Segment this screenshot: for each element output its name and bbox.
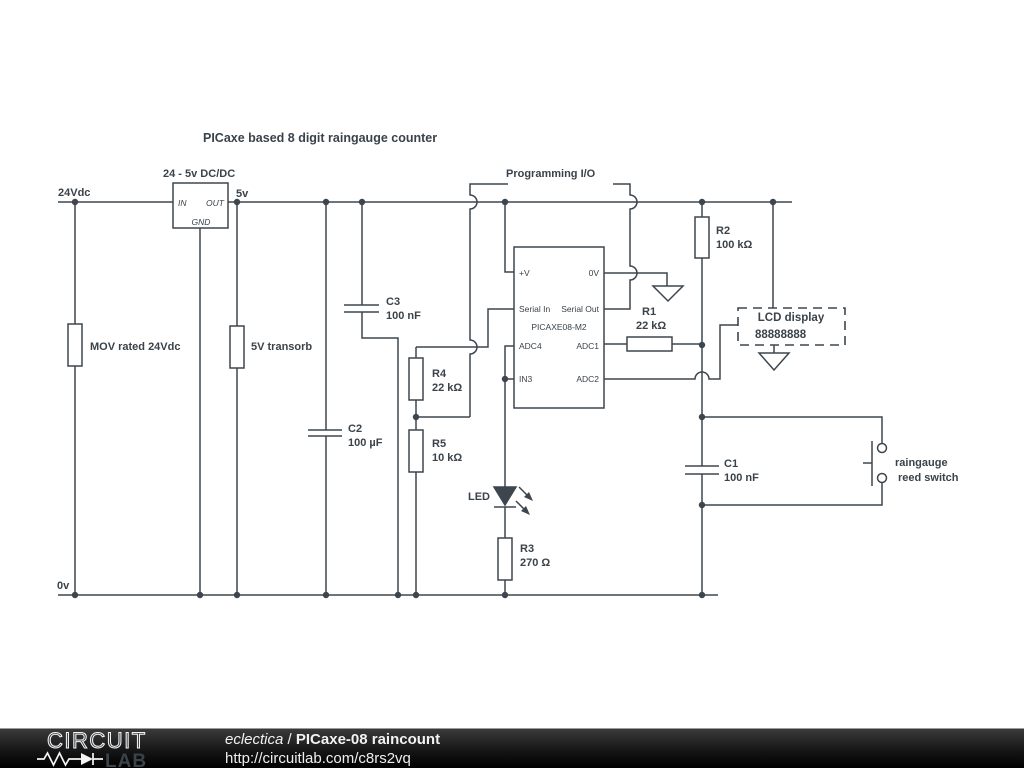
schematic-title: PICaxe based 8 digit raingauge counter <box>203 131 437 145</box>
capacitor-c2: C2 100 µF <box>308 423 383 449</box>
footer-title-line: eclectica / PICaxe-08 raincount <box>225 730 440 749</box>
footer-author: eclectica <box>225 731 283 748</box>
capacitor-c3: C3 100 nF <box>344 296 421 322</box>
logo-text-circuit: CIRCUIT <box>47 729 147 753</box>
schematic-canvas: PICaxe based 8 digit raingauge counter 2… <box>0 0 1024 728</box>
vplus-wire <box>505 202 514 272</box>
dcdc-pin-in: IN <box>178 198 187 208</box>
reed-label-line2: reed switch <box>898 472 959 484</box>
chip-pin-adc2: ADC2 <box>576 374 599 384</box>
circuitlab-schematic-page: PICaxe based 8 digit raingauge counter 2… <box>0 0 1024 768</box>
adc2-lcd-wire <box>604 325 738 379</box>
c3-branch-wire <box>362 202 398 595</box>
c1-ref: C1 <box>724 458 738 470</box>
reed-label-line1: raingauge <box>895 457 948 469</box>
chip-pin-in3: IN3 <box>519 374 533 384</box>
resistor-r4: R4 22 kΩ <box>409 358 462 400</box>
r1-value: 22 kΩ <box>636 320 666 332</box>
footer-schematic-title: PICaxe-08 raincount <box>296 731 440 748</box>
chip-pin-serial-in: Serial In <box>519 304 550 314</box>
picaxe-chip: +V 0V Serial In Serial Out PICAXE08-M2 A… <box>514 247 604 408</box>
footer-text-block: eclectica / PICaxe-08 raincount http://c… <box>225 730 440 768</box>
label-24vdc: 24Vdc <box>58 187 90 199</box>
capacitor-c1: C1 100 nF <box>685 458 759 484</box>
chip-pin-adc4: ADC4 <box>519 341 542 351</box>
r3-ref: R3 <box>520 543 534 555</box>
circuitlab-logo: CIRCUIT LAB <box>35 729 187 768</box>
r4-value: 22 kΩ <box>432 382 462 394</box>
r3-value: 270 Ω <box>520 557 550 569</box>
mov-label: MOV rated 24Vdc <box>90 341 180 353</box>
resistor-r3: R3 270 Ω <box>498 538 550 580</box>
reed-switch: raingauge reed switch <box>863 441 959 486</box>
logo-resistor-diode-icon <box>37 753 103 765</box>
dcdc-pin-gnd: GND <box>192 217 211 227</box>
led-component: LED <box>468 487 533 515</box>
chip-name: PICAXE08-M2 <box>531 322 587 332</box>
resistor-r5: R5 10 kΩ <box>409 430 462 472</box>
r5-ref: R5 <box>432 438 446 450</box>
lcd-display: LCD display 88888888 <box>738 308 845 345</box>
power-rails <box>58 202 792 595</box>
lcd-digits: 88888888 <box>755 329 807 341</box>
chip-pin-0v: 0V <box>589 268 600 278</box>
label-0v: 0v <box>57 580 70 592</box>
resistor-r2: R2 100 kΩ <box>695 217 753 258</box>
zerov-wire <box>604 273 667 286</box>
transorb-component: 5V transorb <box>230 326 312 368</box>
ground-symbol-0v <box>653 286 683 301</box>
ground-symbol-lcd <box>759 353 789 370</box>
wires <box>58 184 882 595</box>
mov-component: MOV rated 24Vdc <box>68 324 180 366</box>
r2-ref: R2 <box>716 225 730 237</box>
r2-value: 100 kΩ <box>716 239 753 251</box>
c2-ref: C2 <box>348 423 362 435</box>
c3-value: 100 nF <box>386 310 421 322</box>
dcdc-label: 24 - 5v DC/DC <box>163 168 235 180</box>
serial-in-wire <box>416 309 514 347</box>
footer-divider: / <box>288 731 292 748</box>
dcdc-pin-out: OUT <box>206 198 225 208</box>
chip-pin-adc1: ADC1 <box>576 341 599 351</box>
label-programming-io: Programming I/O <box>506 168 596 180</box>
c3-ref: C3 <box>386 296 400 308</box>
c1-value: 100 nF <box>724 472 759 484</box>
chip-pin-serial-out: Serial Out <box>561 304 599 314</box>
chip-pin-vplus: +V <box>519 268 530 278</box>
footer-url-link[interactable]: http://circuitlab.com/c8rs2vq <box>225 749 440 768</box>
programming-left-wire <box>470 184 508 417</box>
r4-ref: R4 <box>432 368 447 380</box>
r1-ref: R1 <box>642 306 656 318</box>
resistor-r1: R1 22 kΩ <box>627 306 672 351</box>
c2-value: 100 µF <box>348 437 383 449</box>
logo-text-lab: LAB <box>105 751 147 768</box>
dcdc-converter: 24 - 5v DC/DC IN OUT GND <box>163 168 235 228</box>
junction-dots <box>72 199 776 598</box>
transorb-label: 5V transorb <box>251 341 312 353</box>
footer-bar: CIRCUIT LAB eclectica / PICaxe-08 rainco… <box>0 728 1024 768</box>
label-5v: 5v <box>236 188 249 200</box>
r5-value: 10 kΩ <box>432 452 462 464</box>
lcd-title: LCD display <box>758 312 825 324</box>
led-label: LED <box>468 491 490 503</box>
